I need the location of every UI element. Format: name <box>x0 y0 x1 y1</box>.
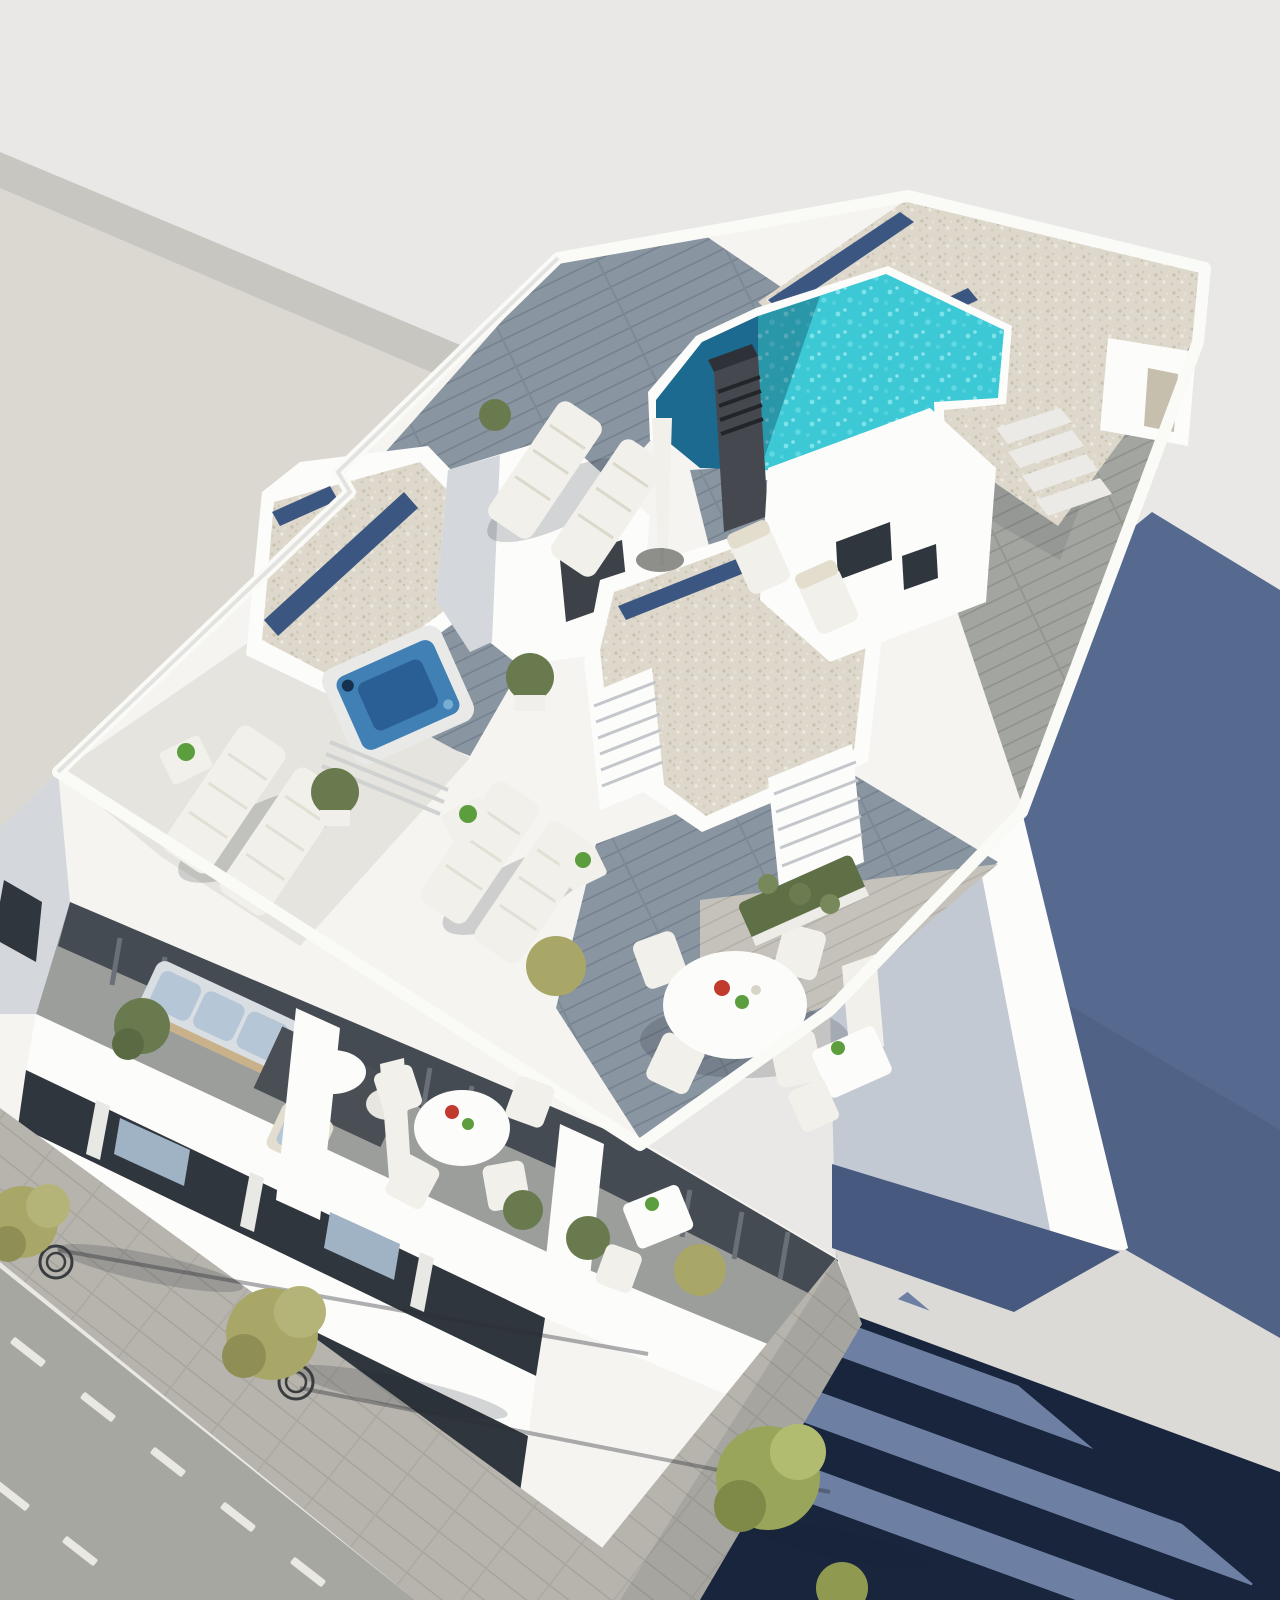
balcony-round-table <box>414 1090 510 1166</box>
render-canvas <box>0 0 1280 1600</box>
terrace-bush <box>526 936 586 996</box>
architectural-render <box>0 0 1280 1600</box>
potted-shrub <box>479 399 511 431</box>
balcony-plant <box>674 1244 726 1296</box>
table-accent-red <box>714 980 730 996</box>
table-plant <box>177 743 195 761</box>
potted-shrub <box>506 653 554 701</box>
balcony-plant <box>503 1190 543 1230</box>
potted-shrub <box>311 768 359 816</box>
table-accent-green <box>735 995 749 1009</box>
balcony-plant <box>566 1216 610 1260</box>
